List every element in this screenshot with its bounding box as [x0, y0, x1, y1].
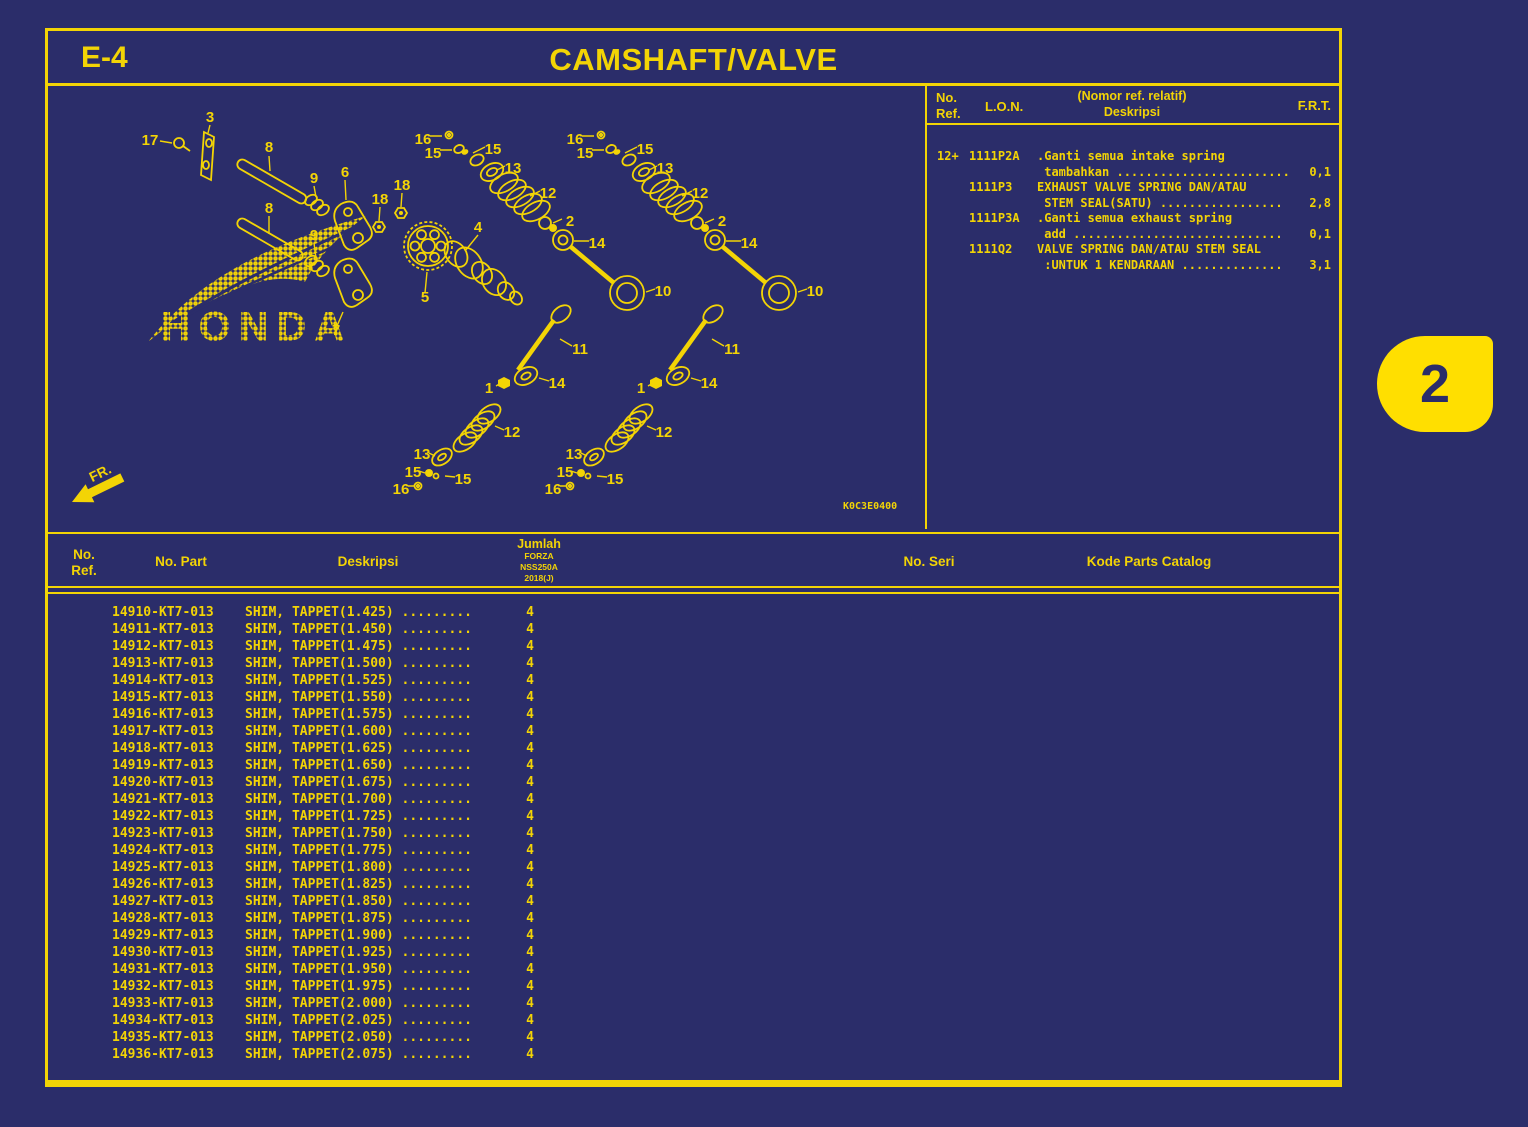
- part-qty: 4: [517, 978, 543, 995]
- table-row: 14914-KT7-013SHIM, TAPPET(1.525) .......…: [48, 672, 1339, 689]
- page-frame: E-4 CAMSHAFT/VALVE: [45, 28, 1342, 1087]
- callout-15: 15: [557, 464, 574, 481]
- content-area: HONDA: [48, 86, 1339, 532]
- callout-14: 14: [701, 375, 718, 392]
- lon-table-header: No. Ref. L.O.N. (Nomor ref. relatif) Des…: [927, 86, 1339, 125]
- part-number: 14928-KT7-013: [112, 910, 245, 927]
- part-number: 14911-KT7-013: [112, 621, 245, 638]
- lon-description: VALVE SPRING DAN/ATAU STEM SEAL :UNTUK 1…: [1037, 242, 1339, 273]
- part-qty: 4: [517, 791, 543, 808]
- part-qty: 4: [517, 774, 543, 791]
- part-description: SHIM, TAPPET(1.675) .........: [245, 774, 517, 791]
- lon-code: 1111Q2: [969, 242, 1037, 273]
- part-description: SHIM, TAPPET(1.800) .........: [245, 859, 517, 876]
- callout-12: 12: [504, 424, 521, 441]
- callout-1: 1: [637, 380, 645, 397]
- table-row: 14930-KT7-013SHIM, TAPPET(1.925) .......…: [48, 944, 1339, 961]
- part-qty: 4: [517, 1012, 543, 1029]
- part-qty: 4: [517, 1029, 543, 1046]
- table-row: 14929-KT7-013SHIM, TAPPET(1.900) .......…: [48, 927, 1339, 944]
- part-number: 14914-KT7-013: [112, 672, 245, 689]
- part-description: SHIM, TAPPET(1.550) .........: [245, 689, 517, 706]
- part-number: 14921-KT7-013: [112, 791, 245, 808]
- part-description: SHIM, TAPPET(1.775) .........: [245, 842, 517, 859]
- table-row: 14927-KT7-013SHIM, TAPPET(1.850) .......…: [48, 893, 1339, 910]
- table-row: 14932-KT7-013SHIM, TAPPET(1.975) .......…: [48, 978, 1339, 995]
- part-description: SHIM, TAPPET(1.925) .........: [245, 944, 517, 961]
- part-description: SHIM, TAPPET(1.600) .........: [245, 723, 517, 740]
- part-description: SHIM, TAPPET(1.900) .........: [245, 927, 517, 944]
- lon-row: 12+1111P2A.Ganti semua intake spring tam…: [927, 149, 1339, 180]
- lon-header-no-ref: No. Ref.: [936, 90, 961, 121]
- part-qty: 4: [517, 621, 543, 638]
- rocker-arm-7-drawing: [334, 259, 372, 307]
- part-number: 14919-KT7-013: [112, 757, 245, 774]
- lon-table: No. Ref. L.O.N. (Nomor ref. relatif) Des…: [925, 86, 1339, 529]
- lon-code: 1111P2A: [969, 149, 1037, 180]
- callout-15: 15: [485, 141, 502, 158]
- table-row: 14934-KT7-013SHIM, TAPPET(2.025) .......…: [48, 1012, 1339, 1029]
- part-description: SHIM, TAPPET(1.725) .........: [245, 808, 517, 825]
- rocker-shaft-drawing: [236, 158, 309, 206]
- callout-13: 13: [505, 160, 522, 177]
- part-description: SHIM, TAPPET(1.575) .........: [245, 706, 517, 723]
- callout-12: 12: [692, 185, 709, 202]
- catalog-page: E-4 CAMSHAFT/VALVE: [0, 0, 1528, 1127]
- part-description: SHIM, TAPPET(1.850) .........: [245, 893, 517, 910]
- parts-header-jumlah: Jumlah FORZA NSS250A 2018(J): [517, 537, 561, 583]
- part-description: SHIM, TAPPET(1.500) .........: [245, 655, 517, 672]
- lon-table-body: 12+1111P2A.Ganti semua intake spring tam…: [927, 125, 1339, 273]
- intake-valve-assembly-drawing: [415, 132, 645, 490]
- part-number: 14925-KT7-013: [112, 859, 245, 876]
- lon-header-frt: F.R.T.: [1298, 98, 1331, 113]
- part-qty: 4: [517, 604, 543, 621]
- lon-description: EXHAUST VALVE SPRING DAN/ATAU STEM SEAL(…: [1037, 180, 1339, 211]
- part-qty: 4: [517, 893, 543, 910]
- part-qty: 4: [517, 655, 543, 672]
- part-number: 14922-KT7-013: [112, 808, 245, 825]
- part-qty: 4: [517, 740, 543, 757]
- part-number: 14933-KT7-013: [112, 995, 245, 1012]
- table-row: 14923-KT7-013SHIM, TAPPET(1.750) .......…: [48, 825, 1339, 842]
- callout-13: 13: [414, 446, 431, 463]
- part-number: 14931-KT7-013: [112, 961, 245, 978]
- callout-10: 10: [655, 283, 672, 300]
- part-description: SHIM, TAPPET(1.525) .........: [245, 672, 517, 689]
- part-description: SHIM, TAPPET(1.750) .........: [245, 825, 517, 842]
- table-row: 14918-KT7-013SHIM, TAPPET(1.625) .......…: [48, 740, 1339, 757]
- lon-row: 1111Q2VALVE SPRING DAN/ATAU STEM SEAL :U…: [927, 242, 1339, 273]
- exhaust-valve-assembly-drawing: [567, 132, 797, 490]
- part-number: 14920-KT7-013: [112, 774, 245, 791]
- part-qty: 4: [517, 757, 543, 774]
- part-qty: 4: [517, 689, 543, 706]
- callout-9: 9: [310, 170, 318, 187]
- parts-table-body: 14910-KT7-013SHIM, TAPPET(1.425) .......…: [48, 594, 1339, 1063]
- callout-5: 5: [421, 289, 429, 306]
- part-description: SHIM, TAPPET(1.650) .........: [245, 757, 517, 774]
- callout-8: 8: [265, 200, 273, 217]
- bushing-9-drawing: [303, 193, 331, 218]
- lon-ref: [927, 211, 969, 242]
- callout-15: 15: [607, 471, 624, 488]
- part-qty: 4: [517, 842, 543, 859]
- table-row: 14916-KT7-013SHIM, TAPPET(1.575) .......…: [48, 706, 1339, 723]
- part-description: SHIM, TAPPET(1.425) .........: [245, 604, 517, 621]
- part-description: SHIM, TAPPET(1.975) .........: [245, 978, 517, 995]
- parts-header-no-part: No. Part: [155, 554, 207, 570]
- part-description: SHIM, TAPPET(2.000) .........: [245, 995, 517, 1012]
- part-number: 14910-KT7-013: [112, 604, 245, 621]
- callout-8: 8: [265, 139, 273, 156]
- lon-code: 1111P3A: [969, 211, 1037, 242]
- lon-description: .Ganti semua exhaust spring add ........…: [1037, 211, 1339, 242]
- part-qty: 4: [517, 944, 543, 961]
- lon-header-lon: L.O.N.: [985, 99, 1023, 114]
- part-number: 14915-KT7-013: [112, 689, 245, 706]
- table-row: 14924-KT7-013SHIM, TAPPET(1.775) .......…: [48, 842, 1339, 859]
- part-qty: 4: [517, 910, 543, 927]
- lon-ref: [927, 180, 969, 211]
- table-row: 14931-KT7-013SHIM, TAPPET(1.950) .......…: [48, 961, 1339, 978]
- callout-15: 15: [405, 464, 422, 481]
- callout-18: 18: [372, 191, 389, 208]
- part-description: SHIM, TAPPET(2.075) .........: [245, 1046, 517, 1063]
- part-qty: 4: [517, 927, 543, 944]
- table-row: 14920-KT7-013SHIM, TAPPET(1.675) .......…: [48, 774, 1339, 791]
- table-row: 14911-KT7-013SHIM, TAPPET(1.450) .......…: [48, 621, 1339, 638]
- table-row: 14933-KT7-013SHIM, TAPPET(2.000) .......…: [48, 995, 1339, 1012]
- table-row: 14912-KT7-013SHIM, TAPPET(1.475) .......…: [48, 638, 1339, 655]
- part-qty: 4: [517, 723, 543, 740]
- lon-row: 1111P3EXHAUST VALVE SPRING DAN/ATAU STEM…: [927, 180, 1339, 211]
- part-number: 14932-KT7-013: [112, 978, 245, 995]
- part-description: SHIM, TAPPET(2.050) .........: [245, 1029, 517, 1046]
- part-qty: 4: [517, 859, 543, 876]
- part-description: SHIM, TAPPET(1.875) .........: [245, 910, 517, 927]
- part-number: 14912-KT7-013: [112, 638, 245, 655]
- part-qty: 4: [517, 672, 543, 689]
- part-description: SHIM, TAPPET(1.825) .........: [245, 876, 517, 893]
- table-row: 14928-KT7-013SHIM, TAPPET(1.875) .......…: [48, 910, 1339, 927]
- fr-direction-arrow: FR.: [62, 458, 126, 511]
- callout-11: 11: [724, 341, 740, 358]
- callout-10: 10: [807, 283, 824, 300]
- lon-ref: [927, 242, 969, 273]
- bolt-18-drawing: [373, 222, 385, 232]
- callout-4: 4: [474, 219, 483, 236]
- part-number: 14926-KT7-013: [112, 876, 245, 893]
- part-description: SHIM, TAPPET(1.950) .........: [245, 961, 517, 978]
- parts-header-kode: Kode Parts Catalog: [1087, 554, 1212, 570]
- part-number: 14913-KT7-013: [112, 655, 245, 672]
- plate-3-drawing: [201, 132, 214, 180]
- part-number: 14930-KT7-013: [112, 944, 245, 961]
- lon-row: 1111P3A.Ganti semua exhaust spring add .…: [927, 211, 1339, 242]
- table-row: 14921-KT7-013SHIM, TAPPET(1.700) .......…: [48, 791, 1339, 808]
- callout-14: 14: [549, 375, 566, 392]
- lon-code: 1111P3: [969, 180, 1037, 211]
- callout-14: 14: [741, 235, 758, 252]
- part-description: SHIM, TAPPET(1.700) .........: [245, 791, 517, 808]
- callout-13: 13: [566, 446, 583, 463]
- callout-15: 15: [577, 145, 594, 162]
- parts-table-header: No. Ref. No. Part Deskripsi Jumlah FORZA…: [48, 532, 1339, 586]
- bolt-17-drawing: [174, 138, 190, 151]
- part-description: SHIM, TAPPET(2.025) .........: [245, 1012, 517, 1029]
- exploded-diagram: HONDA: [48, 86, 925, 529]
- part-qty: 4: [517, 961, 543, 978]
- part-number: 14927-KT7-013: [112, 893, 245, 910]
- part-number: 14936-KT7-013: [112, 1046, 245, 1063]
- part-number: 14916-KT7-013: [112, 706, 245, 723]
- parts-header-no-ref: No. Ref.: [71, 547, 97, 578]
- callout-15: 15: [455, 471, 472, 488]
- callout-numbers: 1738899618187541615151312214101114112131…: [142, 109, 824, 498]
- section-tab[interactable]: 2: [1377, 336, 1493, 432]
- callout-11: 11: [572, 341, 588, 358]
- page-title: CAMSHAFT/VALVE: [48, 42, 1339, 78]
- table-row: 14922-KT7-013SHIM, TAPPET(1.725) .......…: [48, 808, 1339, 825]
- part-number: 14935-KT7-013: [112, 1029, 245, 1046]
- callout-13: 13: [657, 160, 674, 177]
- table-row: 14915-KT7-013SHIM, TAPPET(1.550) .......…: [48, 689, 1339, 706]
- part-number: 14924-KT7-013: [112, 842, 245, 859]
- part-number: 14934-KT7-013: [112, 1012, 245, 1029]
- table-row: 14913-KT7-013SHIM, TAPPET(1.500) .......…: [48, 655, 1339, 672]
- lon-ref: 12+: [927, 149, 969, 180]
- diagram-svg: HONDA: [48, 86, 925, 529]
- table-row: 14936-KT7-013SHIM, TAPPET(2.075) .......…: [48, 1046, 1339, 1063]
- part-description: SHIM, TAPPET(1.450) .........: [245, 621, 517, 638]
- table-row: 14925-KT7-013SHIM, TAPPET(1.800) .......…: [48, 859, 1339, 876]
- callout-16: 16: [393, 481, 410, 498]
- callout-1: 1: [485, 380, 493, 397]
- part-qty: 4: [517, 876, 543, 893]
- callout-2: 2: [566, 213, 574, 230]
- part-qty: 4: [517, 638, 543, 655]
- lon-header-deskripsi: (Nomor ref. relatif) Deskripsi: [1037, 89, 1227, 120]
- callout-18: 18: [394, 177, 411, 194]
- parts-header-deskripsi: Deskripsi: [338, 554, 399, 570]
- callout-2: 2: [718, 213, 726, 230]
- part-number: 14917-KT7-013: [112, 723, 245, 740]
- callout-12: 12: [540, 185, 557, 202]
- table-row: 14910-KT7-013SHIM, TAPPET(1.425) .......…: [48, 604, 1339, 621]
- table-row: 14926-KT7-013SHIM, TAPPET(1.825) .......…: [48, 876, 1339, 893]
- callout-6: 6: [341, 164, 349, 181]
- callout-15: 15: [425, 145, 442, 162]
- part-number: 14929-KT7-013: [112, 927, 245, 944]
- callout-15: 15: [637, 141, 654, 158]
- lon-description: .Ganti semua intake spring tambahkan ...…: [1037, 149, 1339, 180]
- page-header: E-4 CAMSHAFT/VALVE: [48, 31, 1339, 86]
- callout-14: 14: [589, 235, 606, 252]
- diagram-code: K0C3E0400: [843, 501, 897, 512]
- bolt-18-drawing: [395, 208, 407, 218]
- double-divider: [48, 586, 1339, 594]
- table-row: 14919-KT7-013SHIM, TAPPET(1.650) .......…: [48, 757, 1339, 774]
- watermark-text: HONDA: [161, 305, 353, 349]
- callout-16: 16: [545, 481, 562, 498]
- part-qty: 4: [517, 706, 543, 723]
- callout-3: 3: [206, 109, 214, 126]
- part-description: SHIM, TAPPET(1.475) .........: [245, 638, 517, 655]
- part-number: 14918-KT7-013: [112, 740, 245, 757]
- part-description: SHIM, TAPPET(1.625) .........: [245, 740, 517, 757]
- part-qty: 4: [517, 825, 543, 842]
- table-row: 14917-KT7-013SHIM, TAPPET(1.600) .......…: [48, 723, 1339, 740]
- callout-12: 12: [656, 424, 673, 441]
- part-qty: 4: [517, 808, 543, 825]
- callout-9: 9: [310, 227, 318, 244]
- callout-7: 7: [332, 322, 340, 339]
- parts-header-no-seri: No. Seri: [903, 554, 954, 570]
- table-row: 14935-KT7-013SHIM, TAPPET(2.050) .......…: [48, 1029, 1339, 1046]
- part-number: 14923-KT7-013: [112, 825, 245, 842]
- callout-17: 17: [142, 132, 159, 149]
- part-qty: 4: [517, 1046, 543, 1063]
- part-qty: 4: [517, 995, 543, 1012]
